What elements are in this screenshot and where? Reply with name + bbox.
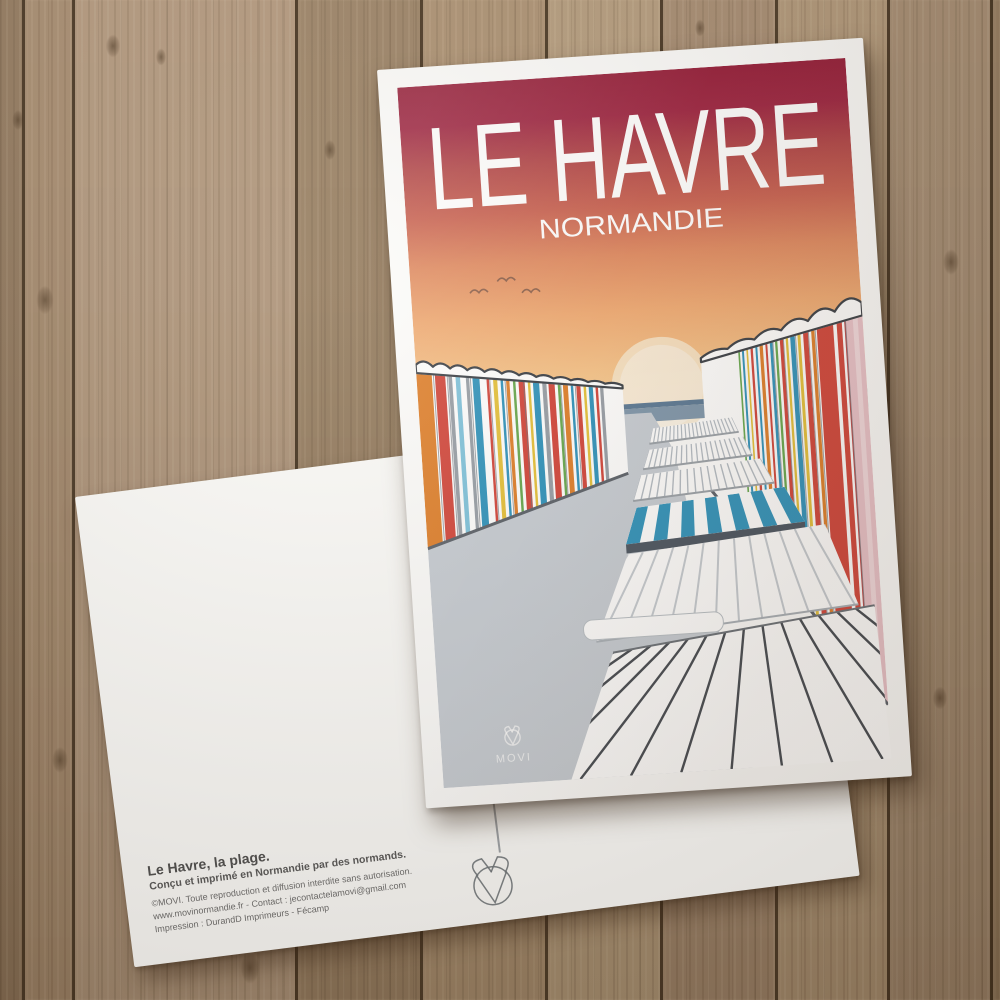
movi-watermark-text: MOVI — [496, 751, 533, 765]
wood-knot — [940, 244, 962, 280]
wood-knot — [103, 30, 122, 62]
wood-plank — [990, 0, 1000, 1000]
wood-knot — [693, 16, 707, 40]
movi-tulip-logo — [463, 853, 522, 915]
postcard-front: MOVI LE HAVRE NORMANDIE — [377, 38, 912, 809]
back-text-block: Le Havre, la plage. Conçu et imprimé en … — [146, 830, 416, 936]
wood-knot — [154, 45, 168, 69]
wood-knot — [33, 280, 57, 320]
wood-plank — [0, 0, 22, 1000]
wood-plank — [887, 0, 993, 1000]
postcard-product-photo: Le Havre, la plage. Conçu et imprimé en … — [0, 0, 1000, 1000]
wood-knot — [49, 742, 71, 778]
wood-plank — [22, 0, 75, 1000]
poster-artwork: MOVI LE HAVRE NORMANDIE — [397, 58, 892, 788]
wood-knot — [930, 682, 949, 714]
movi-tulip-logo-glyph — [471, 856, 515, 907]
